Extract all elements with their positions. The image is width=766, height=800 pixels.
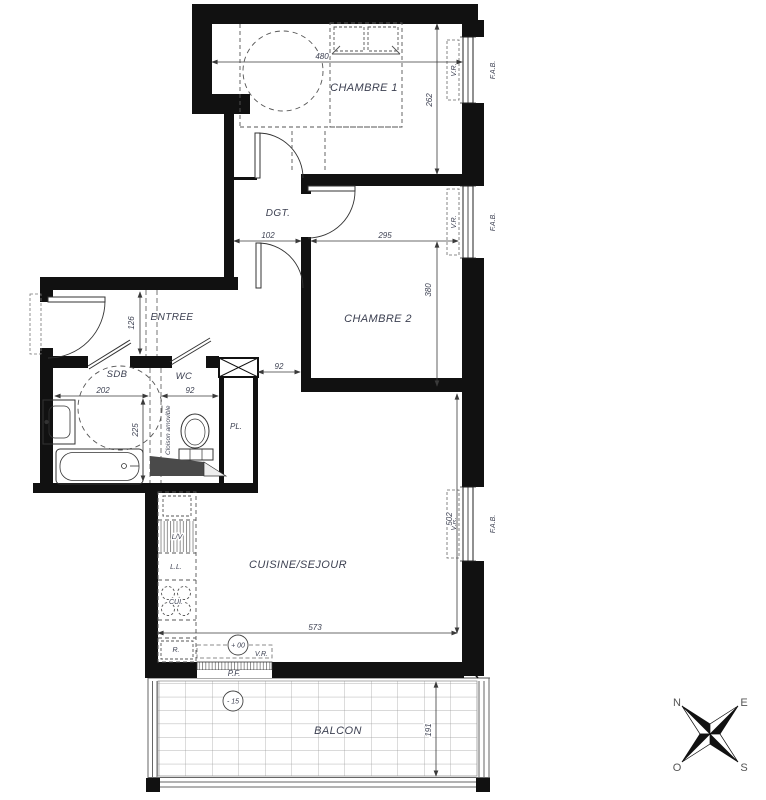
door-sdb [88, 340, 131, 369]
floor-plan-drawing: BALCON [0, 0, 766, 800]
vr-label-1: V.R. [451, 63, 458, 76]
wall-wc-north [206, 356, 219, 368]
wall-east-2 [462, 103, 484, 186]
dim-191: 191 [424, 723, 433, 736]
turning-circle-chambre1 [243, 31, 323, 111]
pf-label: P.F. [228, 669, 241, 678]
wall-chambre2-west [301, 237, 311, 385]
label-cuisson: CUI. [169, 599, 183, 606]
fab-label-1: F.A.B. [490, 61, 497, 80]
dim-92-wc: 92 [186, 386, 195, 395]
compass-south: S [740, 762, 747, 774]
wall-top [192, 4, 478, 24]
room-label-chambre2: CHAMBRE 2 [344, 313, 412, 325]
dim-225: 225 [131, 423, 140, 438]
wall-south-left [145, 662, 197, 678]
room-label-wc: WC [176, 371, 193, 382]
balcony-post-right [476, 778, 490, 792]
balcony: BALCON [146, 662, 490, 792]
wall-wc-pl-divider [219, 368, 224, 483]
wall-upper-left [192, 4, 212, 96]
cloison-label: Cloison amovible [165, 405, 172, 455]
chambre1-furniture [240, 23, 402, 172]
wall-pl-east [253, 368, 258, 483]
wall-sdb-north-b [130, 356, 172, 368]
level-balcon: - 15 [227, 699, 239, 706]
toilet [179, 414, 213, 460]
entry-door [30, 294, 105, 358]
dim-573: 573 [308, 623, 322, 632]
compass-west: O [673, 762, 682, 774]
fab-label-3: F.A.B. [490, 515, 497, 534]
level-interieur: + 00 [231, 643, 245, 650]
dim-480: 480 [315, 52, 329, 61]
balcony-post-left [146, 778, 160, 792]
wall-west-b [40, 348, 53, 483]
wall-south-right [272, 662, 464, 678]
label-lave-vaisselle: L/V [172, 534, 184, 541]
compass-east: E [740, 697, 747, 709]
wall-header-line [234, 177, 257, 180]
kitchen-units [158, 492, 196, 662]
wall-east-4 [462, 561, 484, 676]
wall-entree-north [40, 277, 238, 290]
door-chambre2 [308, 186, 355, 238]
dim-262: 262 [425, 93, 434, 108]
room-label-cuisine: CUISINE/SEJOUR [249, 559, 347, 571]
compass-rose: N E O S [673, 697, 748, 774]
wc-duct-wedge [150, 456, 204, 476]
room-label-balcon: BALCON [314, 725, 362, 737]
room-label-placard: PL. [230, 422, 242, 431]
door-couloir [256, 243, 303, 288]
bed [330, 23, 402, 127]
dim-202: 202 [95, 386, 110, 395]
entry-threshold [30, 294, 41, 354]
vr-label-2: V.R. [451, 215, 458, 228]
label-refrigerateur: R. [173, 647, 180, 654]
wall-east-1 [462, 20, 484, 37]
dim-380: 380 [424, 283, 433, 297]
wall-east-3 [462, 258, 484, 487]
duct-box [219, 358, 258, 377]
dressing-dashed-lines [240, 24, 402, 172]
bed-blanket-line [332, 46, 400, 54]
sdb-fixtures [43, 366, 162, 484]
room-label-sdb: SDB [107, 369, 128, 380]
door-wc [170, 338, 211, 365]
wall-chambre1-south [301, 174, 462, 186]
compass-north: N [673, 697, 681, 709]
bathtub [56, 449, 143, 484]
fab-label-2: F.A.B. [490, 213, 497, 232]
dim-295: 295 [377, 231, 392, 240]
dim-102: 102 [261, 231, 275, 240]
wall-chambre2-south [301, 378, 464, 392]
room-label-dgt: DGT. [266, 208, 291, 219]
room-label-entree: ENTREE [151, 312, 194, 323]
vr-label-pf: V.R. [255, 651, 268, 658]
balcony-rail-left [148, 678, 157, 792]
balcony-rail-right [479, 678, 489, 792]
wall-dgt-west [224, 114, 234, 290]
dim-126: 126 [127, 316, 136, 330]
door-chambre1 [255, 133, 303, 178]
label-lave-linge: L.L. [170, 564, 182, 571]
room-label-chambre1: CHAMBRE 1 [330, 82, 398, 94]
wall-sdb-north-a [40, 356, 88, 368]
wall-step [192, 94, 250, 114]
exterior-walls [33, 4, 484, 678]
dim-502: 502 [445, 512, 454, 526]
wall-cuisine-west [145, 483, 158, 678]
floor-plan-page: BALCON [0, 0, 766, 800]
balcony-rail-bottom [148, 778, 490, 788]
dim-92-couloir: 92 [275, 362, 284, 371]
